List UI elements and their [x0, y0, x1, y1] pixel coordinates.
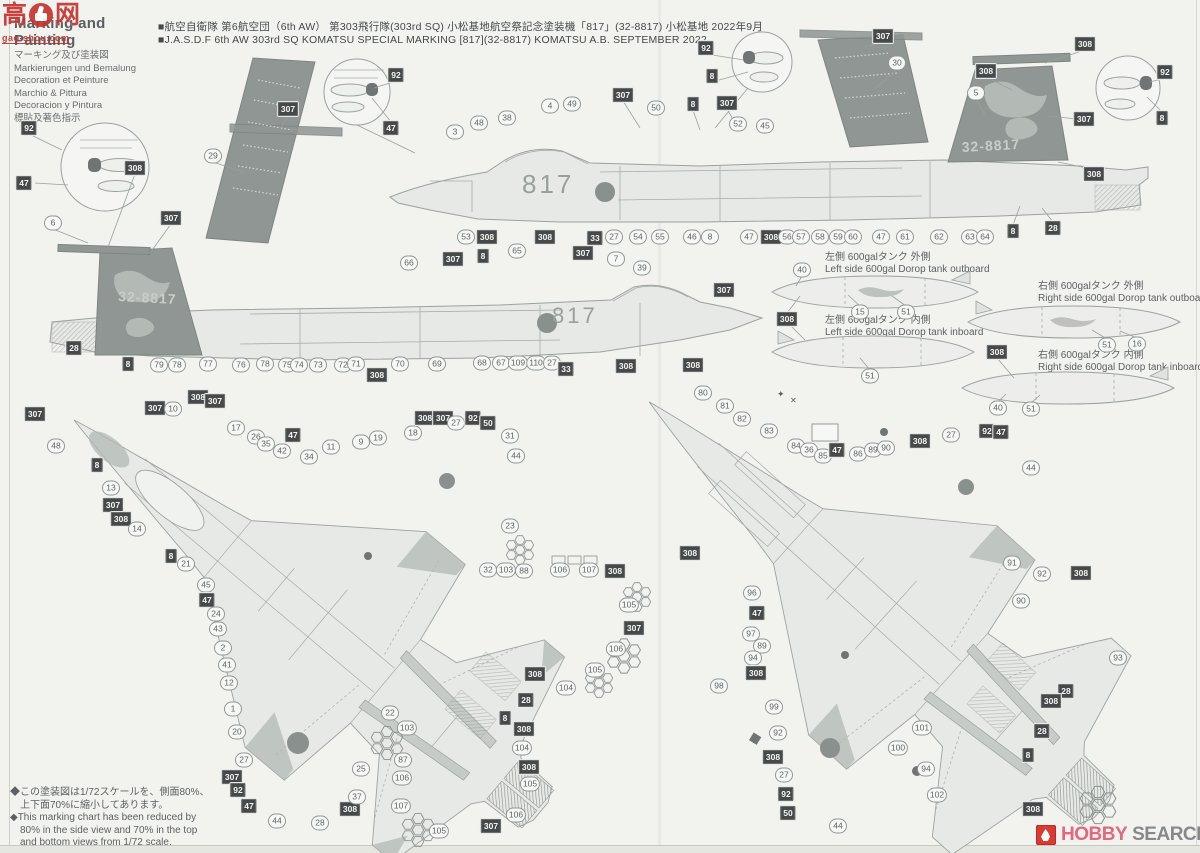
decal-callout-71: 71 [347, 357, 365, 372]
paint-callout-47: 47 [199, 593, 214, 607]
instruction-sheet-page: 817 32-8817 817 32-8817 [0, 0, 1200, 853]
paint-callout-47: 47 [383, 121, 398, 135]
paint-callout-308: 308 [777, 312, 797, 326]
paint-callout-307: 307 [205, 394, 225, 408]
paint-callout-308: 308 [514, 722, 534, 736]
paint-callout-307: 307 [714, 283, 734, 297]
decal-callout-6: 6 [44, 216, 62, 231]
paint-callout-308: 308 [1023, 802, 1043, 816]
decal-callout-105: 105 [429, 824, 449, 839]
decal-callout-104: 104 [512, 741, 532, 756]
decal-callout-51: 51 [861, 369, 879, 384]
decal-callout-76: 76 [232, 358, 250, 373]
decal-callout-91: 91 [1003, 556, 1021, 571]
decal-callout-69: 69 [428, 357, 446, 372]
paint-callout-307: 307 [25, 407, 45, 421]
paint-callout-47: 47 [993, 425, 1008, 439]
decal-callout-44: 44 [507, 449, 525, 464]
decal-callout-94: 94 [917, 762, 935, 777]
decal-callout-106: 106 [550, 563, 570, 578]
paint-callout-308: 308 [680, 546, 700, 560]
decal-callout-106: 106 [606, 642, 626, 657]
watermark-logo: 高 网 gao-shou.com [2, 2, 80, 46]
decal-callout-57: 57 [792, 230, 810, 245]
decal-callout-47: 47 [872, 230, 890, 245]
paint-callout-33: 33 [558, 362, 573, 376]
decal-callout-32: 32 [479, 563, 497, 578]
decal-callout-19: 19 [369, 431, 387, 446]
decal-callout-68: 68 [473, 356, 491, 371]
decal-callout-70: 70 [391, 357, 409, 372]
decal-callout-92: 92 [769, 726, 787, 741]
paint-callout-307: 307 [573, 246, 593, 260]
paint-callout-92: 92 [230, 783, 245, 797]
decal-callout-73: 73 [309, 358, 327, 373]
paint-callout-307: 307 [624, 621, 644, 635]
decal-callout-105: 105 [619, 598, 639, 613]
decal-callout-58: 58 [811, 230, 829, 245]
decal-callout-90: 90 [877, 441, 895, 456]
decal-callout-37: 37 [348, 790, 366, 805]
decal-callout-79: 79 [150, 358, 168, 373]
paint-callout-307: 307 [278, 102, 298, 116]
callout-layer: 9247308630729307924734838449307508307524… [0, 0, 1200, 853]
decal-callout-5: 5 [967, 86, 985, 101]
decal-callout-39: 39 [633, 261, 651, 276]
paint-callout-308: 308 [125, 161, 145, 175]
watermark-char-left: 高 [2, 2, 27, 28]
decal-callout-90: 90 [1012, 594, 1030, 609]
decal-callout-94: 94 [744, 651, 762, 666]
paint-callout-308: 308 [746, 666, 766, 680]
decal-callout-62: 62 [930, 230, 948, 245]
decal-callout-107: 107 [579, 563, 599, 578]
decal-callout-18: 18 [404, 426, 422, 441]
decal-callout-11: 11 [322, 440, 340, 455]
decal-callout-96: 96 [743, 586, 761, 601]
decal-callout-54: 54 [629, 230, 647, 245]
decal-callout-51: 51 [1022, 402, 1040, 417]
decal-callout-42: 42 [273, 444, 291, 459]
decal-callout-100: 100 [888, 741, 908, 756]
thumb-up-icon [29, 3, 53, 27]
paint-callout-28: 28 [518, 693, 533, 707]
decal-callout-22: 22 [381, 706, 399, 721]
decal-callout-82: 82 [733, 412, 751, 427]
paint-callout-50: 50 [780, 806, 795, 820]
decal-callout-44: 44 [268, 814, 286, 829]
paint-callout-308: 308 [525, 667, 545, 681]
decal-callout-53: 53 [457, 230, 475, 245]
paint-callout-308: 308 [477, 230, 497, 244]
paint-callout-307: 307 [222, 770, 242, 784]
paint-callout-308: 308 [763, 750, 783, 764]
paint-callout-8: 8 [707, 69, 718, 83]
decal-callout-27: 27 [942, 428, 960, 443]
decal-callout-52: 52 [729, 117, 747, 132]
decal-callout-27: 27 [235, 753, 253, 768]
watermark-url: gao-shou.com [2, 33, 70, 44]
decal-callout-8: 8 [701, 230, 719, 245]
paint-callout-307: 307 [1074, 112, 1094, 126]
paint-callout-308: 308 [1075, 37, 1095, 51]
decal-callout-4: 4 [541, 99, 559, 114]
decal-callout-44: 44 [829, 819, 847, 834]
brand-word-search: SEARCH [1132, 824, 1200, 846]
decal-callout-98: 98 [710, 679, 728, 694]
decal-callout-74: 74 [290, 358, 308, 373]
paint-callout-308: 308 [987, 345, 1007, 359]
paint-callout-47: 47 [241, 799, 256, 813]
decal-callout-21: 21 [177, 557, 195, 572]
decal-callout-48: 48 [47, 439, 65, 454]
decal-callout-14: 14 [128, 522, 146, 537]
decal-callout-102: 102 [927, 788, 947, 803]
decal-callout-29: 29 [204, 149, 222, 164]
decal-callout-105: 105 [520, 777, 540, 792]
paint-callout-308: 308 [367, 368, 387, 382]
paint-callout-47: 47 [829, 443, 844, 457]
paint-callout-47: 47 [285, 428, 300, 442]
decal-callout-25: 25 [352, 762, 370, 777]
paint-callout-308: 308 [1084, 167, 1104, 181]
paint-callout-8: 8 [500, 711, 511, 725]
paint-callout-8: 8 [478, 249, 489, 263]
paint-callout-307: 307 [481, 819, 501, 833]
decal-callout-13: 13 [102, 481, 120, 496]
paint-callout-308: 308 [111, 512, 131, 526]
paint-callout-92: 92 [21, 121, 36, 135]
decal-callout-31: 31 [501, 429, 519, 444]
paint-callout-308: 308 [683, 358, 703, 372]
decal-callout-27: 27 [775, 768, 793, 783]
decal-callout-78: 78 [256, 357, 274, 372]
decal-callout-81: 81 [716, 399, 734, 414]
decal-callout-92: 92 [1033, 567, 1051, 582]
decal-callout-23: 23 [501, 519, 519, 534]
decal-callout-103: 103 [496, 563, 516, 578]
decal-callout-38: 38 [498, 111, 516, 126]
paint-callout-308: 308 [519, 760, 539, 774]
decal-callout-20: 20 [228, 725, 246, 740]
decal-callout-45: 45 [756, 119, 774, 134]
paint-callout-8: 8 [1008, 224, 1019, 238]
decal-callout-64: 64 [976, 230, 994, 245]
decal-callout-87: 87 [394, 753, 412, 768]
hobby-search-logo: HOBBY SEARCH [1036, 824, 1200, 846]
decal-callout-46: 46 [683, 230, 701, 245]
decal-callout-103: 103 [397, 721, 417, 736]
paint-callout-308: 308 [910, 434, 930, 448]
decal-callout-107: 107 [391, 799, 411, 814]
decal-callout-106: 106 [506, 808, 526, 823]
paint-callout-47: 47 [749, 606, 764, 620]
decal-callout-104: 104 [556, 681, 576, 696]
paint-callout-8: 8 [92, 458, 103, 472]
paint-callout-307: 307 [613, 88, 633, 102]
decal-callout-30: 30 [888, 56, 906, 71]
decal-callout-15: 15 [851, 305, 869, 320]
decal-callout-9: 9 [352, 435, 370, 450]
decal-callout-77: 77 [199, 357, 217, 372]
decal-callout-1: 1 [224, 702, 242, 717]
paint-callout-33: 33 [587, 231, 602, 245]
decal-callout-3: 3 [446, 125, 464, 140]
decal-callout-7: 7 [607, 252, 625, 267]
decal-callout-101: 101 [912, 721, 932, 736]
decal-callout-47: 47 [740, 230, 758, 245]
decal-callout-93: 93 [1109, 651, 1127, 666]
decal-callout-49: 49 [563, 97, 581, 112]
paint-callout-307: 307 [161, 211, 181, 225]
hobby-search-icon [1036, 825, 1056, 845]
decal-callout-27: 27 [447, 416, 465, 431]
decal-callout-16: 16 [1128, 337, 1146, 352]
decal-callout-27: 27 [605, 230, 623, 245]
paint-callout-307: 307 [717, 96, 737, 110]
paint-callout-307: 307 [443, 252, 463, 266]
decal-callout-78: 78 [168, 358, 186, 373]
decal-callout-43: 43 [209, 622, 227, 637]
paint-callout-308: 308 [976, 64, 996, 78]
paint-callout-92: 92 [388, 68, 403, 82]
decal-callout-106: 106 [392, 771, 412, 786]
paint-callout-28: 28 [1034, 724, 1049, 738]
decal-callout-61: 61 [896, 230, 914, 245]
paint-callout-308: 308 [1071, 566, 1091, 580]
paint-callout-50: 50 [480, 416, 495, 430]
paint-callout-92: 92 [778, 787, 793, 801]
decal-callout-40: 40 [793, 263, 811, 278]
decal-callout-109: 109 [508, 356, 528, 371]
decal-callout-34: 34 [300, 450, 318, 465]
decal-callout-2: 2 [214, 641, 232, 656]
paint-callout-28: 28 [1045, 221, 1060, 235]
decal-callout-40: 40 [989, 401, 1007, 416]
paint-callout-8: 8 [688, 97, 699, 111]
paint-callout-308: 308 [616, 359, 636, 373]
decal-callout-10: 10 [164, 402, 182, 417]
decal-callout-80: 80 [694, 386, 712, 401]
paint-callout-307: 307 [145, 401, 165, 415]
decal-callout-60: 60 [844, 230, 862, 245]
decal-callout-105: 105 [585, 663, 605, 678]
decal-callout-99: 99 [765, 700, 783, 715]
paint-callout-8: 8 [123, 357, 134, 371]
decal-callout-51: 51 [1098, 338, 1116, 353]
decal-callout-55: 55 [651, 230, 669, 245]
decal-callout-48: 48 [470, 116, 488, 131]
paint-callout-92: 92 [698, 41, 713, 55]
decal-callout-51: 51 [897, 305, 915, 320]
paint-callout-307: 307 [103, 498, 123, 512]
paint-callout-307: 307 [873, 29, 893, 43]
paint-callout-47: 47 [16, 176, 31, 190]
paint-callout-92: 92 [465, 411, 480, 425]
decal-callout-45: 45 [197, 578, 215, 593]
decal-callout-50: 50 [647, 101, 665, 116]
decal-callout-44: 44 [1022, 461, 1040, 476]
brand-word-hobby: HOBBY [1061, 824, 1127, 846]
watermark-char-right: 网 [55, 2, 80, 28]
decal-callout-12: 12 [220, 676, 238, 691]
paint-callout-8: 8 [1157, 111, 1168, 125]
decal-callout-17: 17 [227, 421, 245, 436]
decal-callout-65: 65 [508, 244, 526, 259]
decal-callout-41: 41 [218, 658, 236, 673]
paint-callout-308: 308 [1041, 694, 1061, 708]
decal-callout-88: 88 [515, 564, 533, 579]
decal-callout-28: 28 [311, 816, 329, 831]
decal-callout-83: 83 [760, 424, 778, 439]
paint-callout-8: 8 [166, 549, 177, 563]
paint-callout-308: 308 [535, 230, 555, 244]
paint-callout-308: 308 [605, 564, 625, 578]
paint-callout-28: 28 [66, 341, 81, 355]
paint-callout-92: 92 [1157, 65, 1172, 79]
decal-callout-24: 24 [207, 607, 225, 622]
paint-callout-8: 8 [1023, 748, 1034, 762]
decal-callout-66: 66 [400, 256, 418, 271]
